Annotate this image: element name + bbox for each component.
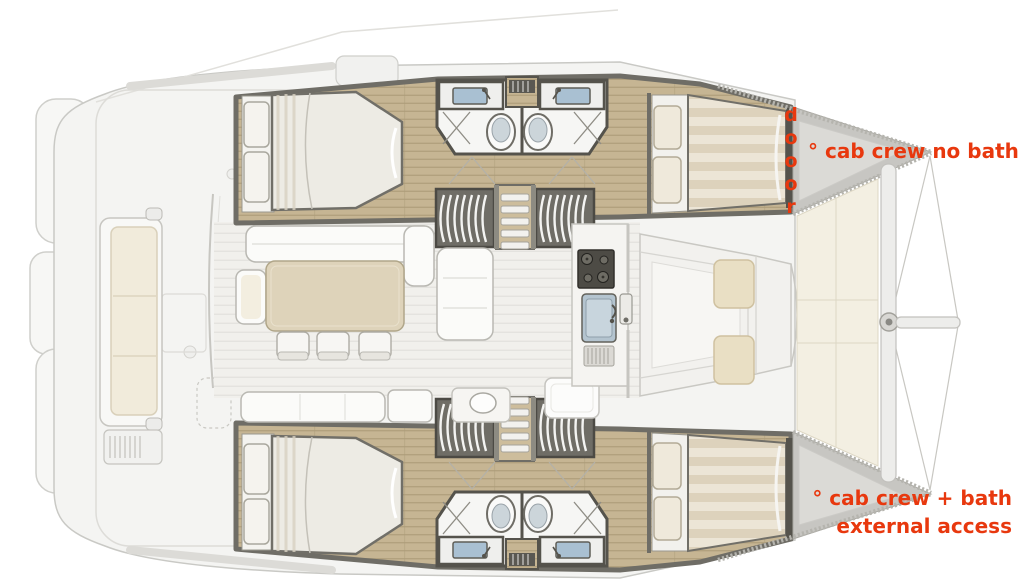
door-handle (624, 318, 629, 323)
cockpit-bench (100, 208, 162, 430)
bow-rigging (797, 156, 960, 490)
floorplan-canvas: dooor ° cab crew no bath ° cab crew + ba… (0, 0, 1024, 585)
stove (578, 250, 614, 288)
annotation-line-2: external access (812, 512, 1012, 540)
aft-sofa (241, 392, 385, 422)
bowsprit (896, 317, 960, 328)
dining-table (266, 261, 404, 331)
nav-bench (437, 248, 493, 340)
annotation-line-1: ° cab crew + bath (812, 484, 1012, 512)
dining-chairs (277, 332, 391, 360)
sofa-corner (404, 226, 434, 286)
crew-cabin-bath-annotation: ° cab crew + bath external access (812, 484, 1012, 540)
cockpit-cushion (714, 260, 754, 308)
galley-sink (582, 294, 616, 342)
cockpit-cushion (714, 336, 754, 384)
cockpit-grille-module (104, 430, 162, 464)
crew-cabin-no-bath-annotation: ° cab crew no bath (808, 139, 1019, 163)
trampoline (797, 179, 878, 466)
galley-round-sink (470, 393, 496, 413)
door-annotation: dooor (781, 104, 801, 219)
galley (572, 224, 632, 398)
